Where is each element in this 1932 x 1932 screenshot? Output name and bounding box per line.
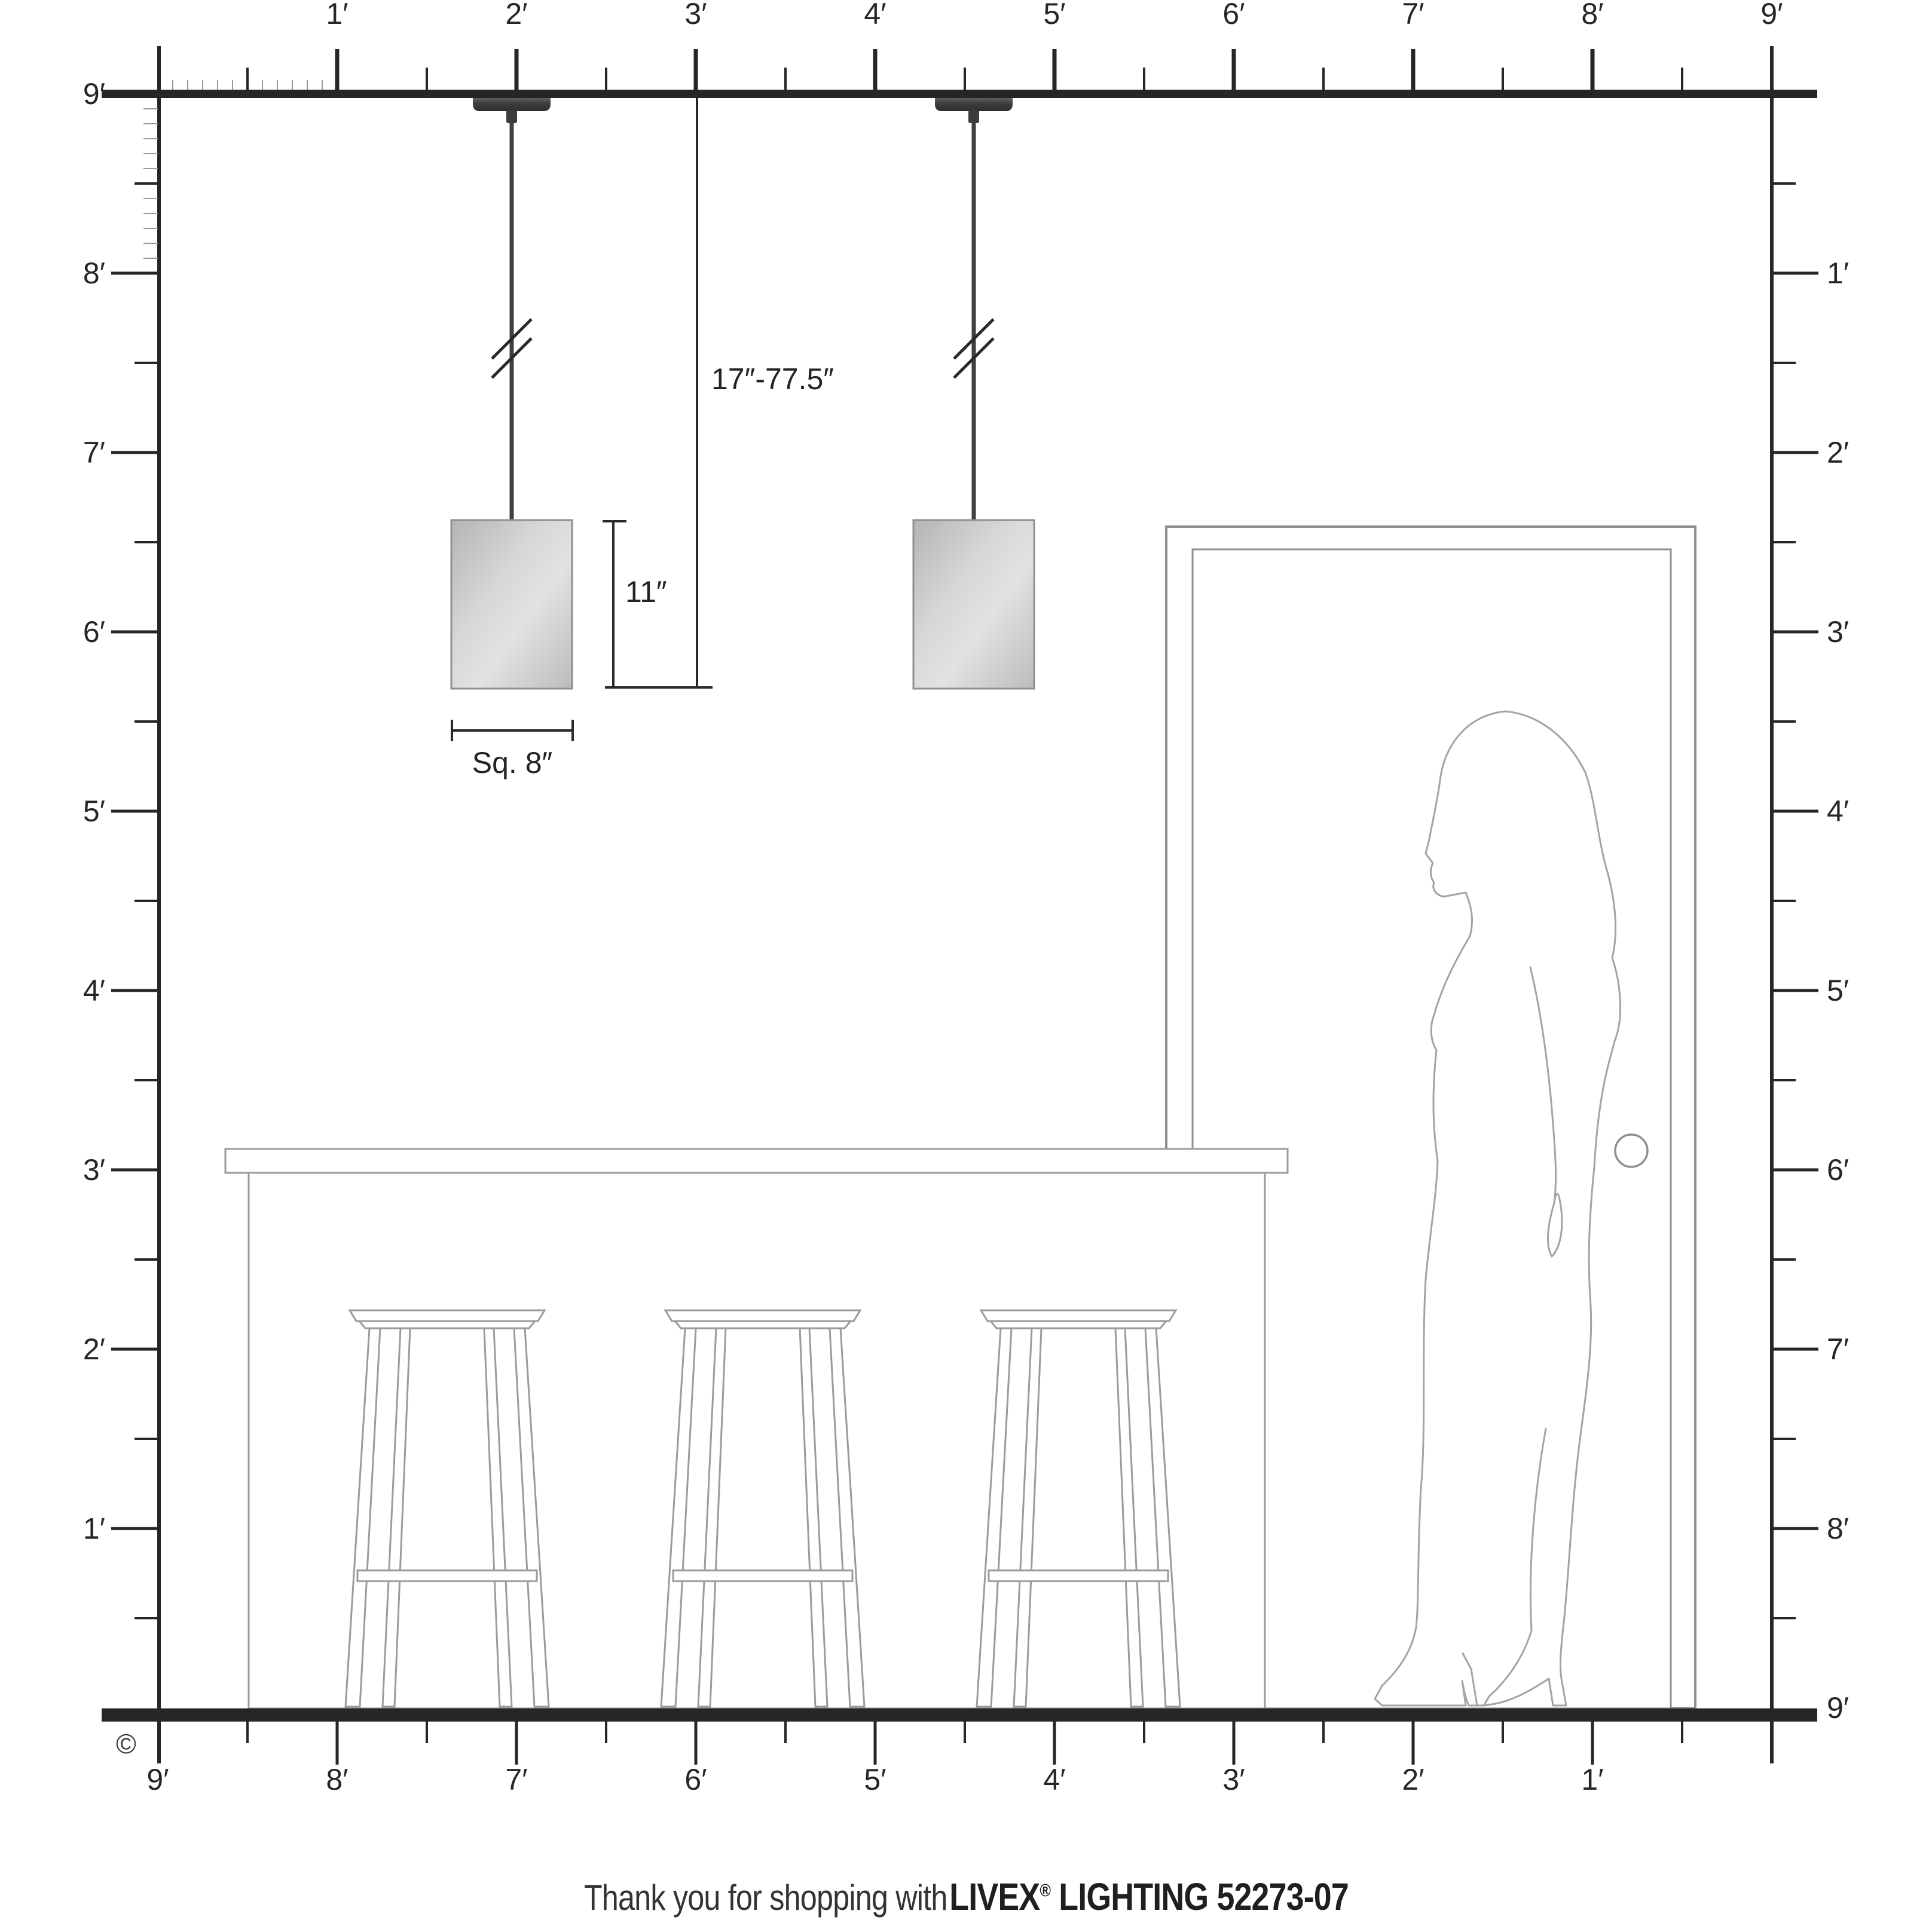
pendant-light-2 (913, 97, 1034, 689)
ruler-bottom-label-9ft: 9′ (131, 1765, 185, 1795)
ruler-top-label-1ft: 1′ (310, 0, 364, 29)
ruler-left-label-9ft: 9′ (48, 79, 105, 109)
ruler-bottom-label-1ft: 1′ (1566, 1765, 1619, 1795)
ruler-left-label-6ft: 6′ (48, 617, 105, 647)
ruler-right-label-6ft: 6′ (1827, 1155, 1849, 1185)
ruler-right-label-9ft: 9′ (1827, 1693, 1849, 1723)
copyright-icon: © (116, 1728, 136, 1760)
ruler-left-label-8ft: 8′ (48, 258, 105, 288)
ruler-top-label-3ft: 3′ (669, 0, 723, 29)
ruler-bottom-label-5ft: 5′ (848, 1765, 902, 1795)
ruler-left-label-7ft: 7′ (48, 438, 105, 467)
ruler-top-label-5ft: 5′ (1028, 0, 1081, 29)
ruler-left-label-2ft: 2′ (48, 1334, 105, 1364)
door-knob (1615, 1135, 1647, 1167)
ruler-top-label-7ft: 7′ (1386, 0, 1440, 29)
ruler-right-label-3ft: 3′ (1827, 617, 1849, 647)
island-countertop (225, 1149, 1288, 1173)
footer-thankyou-text: Thank you for shopping with (583, 1878, 947, 1918)
ruler-top-label-4ft: 4′ (848, 0, 902, 29)
ruler-right-label-2ft: 2′ (1827, 438, 1849, 467)
ruler-left-label-3ft: 3′ (48, 1155, 105, 1185)
shade-height-label: 11″ (625, 576, 667, 607)
ruler-bottom-label-3ft: 3′ (1207, 1765, 1261, 1795)
ruler-bottom-label-6ft: 6′ (669, 1765, 723, 1795)
shade-height-dimension-line (603, 521, 626, 687)
ruler-right-label-8ft: 8′ (1827, 1514, 1849, 1543)
suspension-range-label: 17″-77.5″ (711, 363, 834, 395)
shade-width-label: Sq. 8″ (452, 747, 573, 778)
ruler-bottom-label-2ft: 2′ (1386, 1765, 1440, 1795)
floor-line (102, 1708, 1817, 1722)
scale-diagram: 1′ 2′ 3′ 4′ 5′ 6′ 7′ 8′ 9′ 9′ 8′ 7′ 6′ 5… (0, 0, 1932, 1932)
ruler-right-label-4ft: 4′ (1827, 796, 1849, 826)
bottom-ruler-half-ticks (247, 1722, 1682, 1743)
right-ruler-half-ticks (1772, 184, 1796, 1618)
ruler-top-label-9ft: 9′ (1745, 0, 1799, 29)
ruler-bottom-label-8ft: 8′ (310, 1765, 364, 1795)
ruler-left-label-5ft: 5′ (48, 796, 105, 826)
ruler-right-label-7ft: 7′ (1827, 1334, 1849, 1364)
brand-name: LIVEX (949, 1875, 1040, 1918)
ruler-right-label-5ft: 5′ (1827, 976, 1849, 1005)
left-ruler-half-ticks (134, 184, 159, 1618)
pendant-light-1 (451, 97, 572, 689)
registered-trademark-icon: ® (1040, 1881, 1050, 1901)
ruler-top-label-2ft: 2′ (490, 0, 543, 29)
ruler-left-label-1ft: 1′ (48, 1514, 105, 1543)
top-ruler-half-ticks (247, 68, 1682, 90)
diagram-line-art (0, 0, 1932, 1932)
ceiling-line (102, 90, 1817, 98)
ruler-bottom-label-4ft: 4′ (1028, 1765, 1081, 1795)
ruler-left-label-4ft: 4′ (48, 976, 105, 1005)
ruler-top-label-8ft: 8′ (1566, 0, 1619, 29)
ruler-top-label-6ft: 6′ (1207, 0, 1261, 29)
ruler-bottom-label-7ft: 7′ (490, 1765, 543, 1795)
ruler-right-label-1ft: 1′ (1827, 258, 1849, 288)
footer-model-text: LIGHTING 52273-07 (1050, 1875, 1349, 1918)
footer: Thank you for shopping with LIVEX® LIGHT… (0, 1875, 1932, 1919)
shade-width-dimension-line (452, 720, 573, 741)
